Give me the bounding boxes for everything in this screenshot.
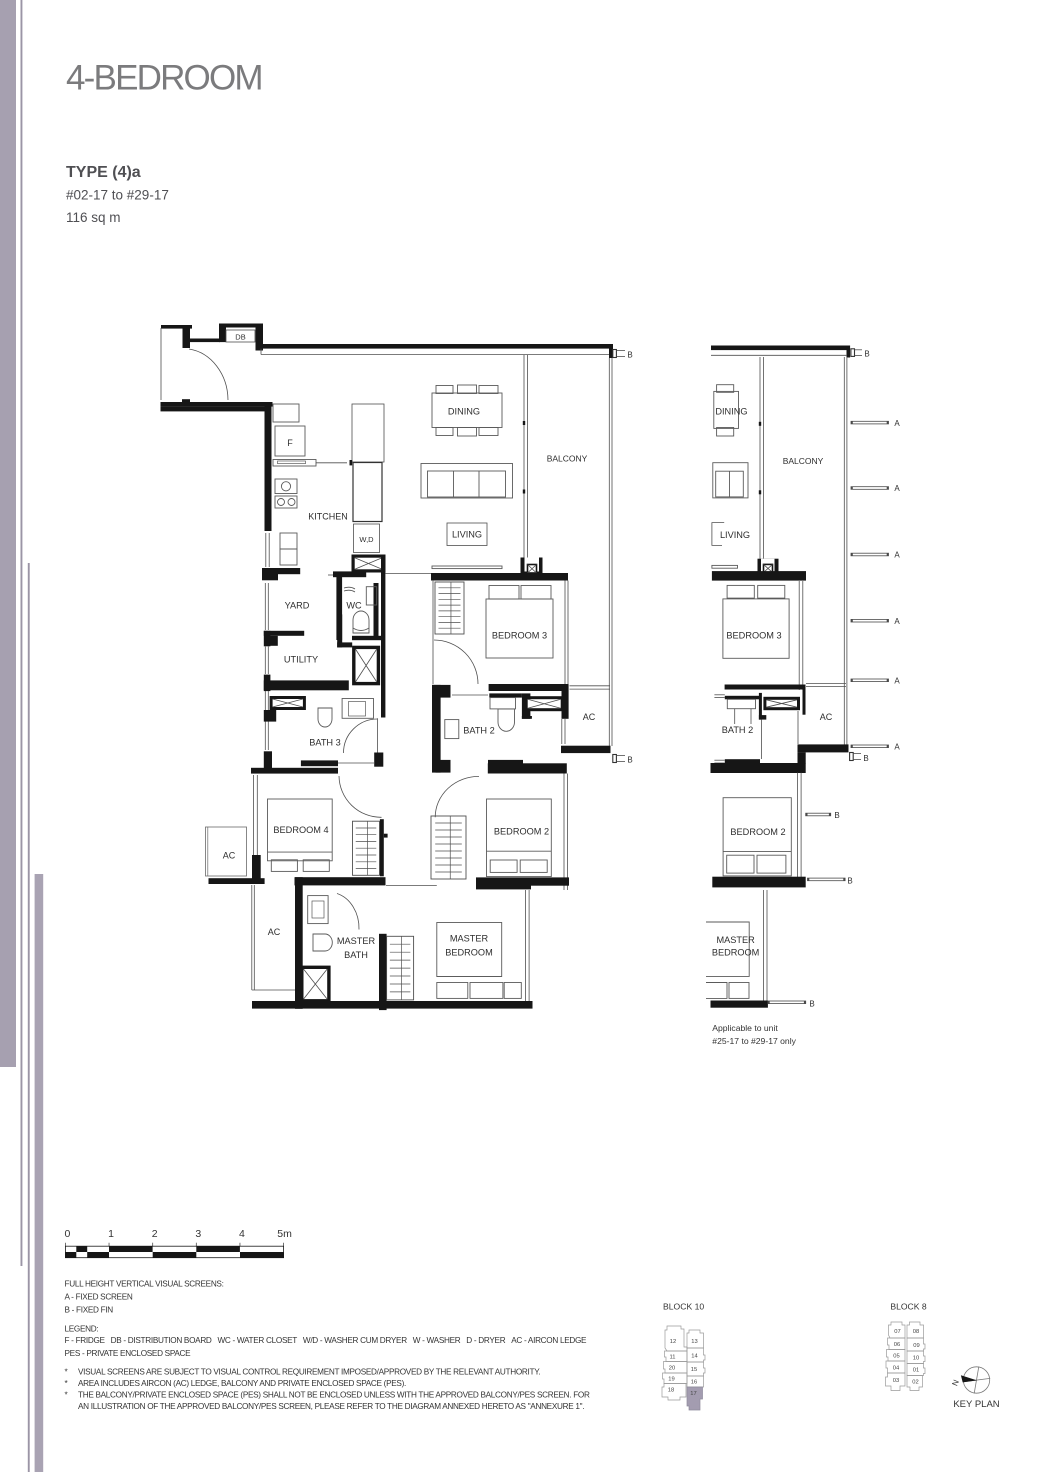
svg-text:A: A <box>894 551 900 560</box>
svg-text:15: 15 <box>691 1367 697 1373</box>
svg-text:01: 01 <box>913 1368 919 1374</box>
svg-text:B: B <box>864 350 869 359</box>
svg-text:DINING: DINING <box>448 407 480 417</box>
svg-text:#25-17 to #29-17 only: #25-17 to #29-17 only <box>712 1036 796 1046</box>
svg-text:A: A <box>894 743 900 752</box>
svg-text:13: 13 <box>691 1339 697 1345</box>
svg-text:BALCONY: BALCONY <box>783 456 824 466</box>
svg-text:A: A <box>894 617 900 626</box>
svg-text:KEY PLAN: KEY PLAN <box>953 1399 999 1410</box>
svg-text:F: F <box>287 438 293 448</box>
svg-text:BEDROOM: BEDROOM <box>445 948 492 958</box>
svg-text:A: A <box>894 677 900 686</box>
svg-text:AC: AC <box>268 927 281 937</box>
svg-text:*: * <box>65 1379 69 1388</box>
svg-text:W,D: W,D <box>359 535 374 544</box>
svg-text:04: 04 <box>893 1366 900 1372</box>
svg-text:2: 2 <box>152 1228 158 1240</box>
svg-text:AC: AC <box>820 712 833 722</box>
svg-text:BATH 2: BATH 2 <box>463 726 494 736</box>
svg-text:YARD: YARD <box>285 601 310 611</box>
svg-text:14: 14 <box>691 1354 698 1360</box>
svg-text:A: A <box>894 419 900 428</box>
svg-text:LIVING: LIVING <box>720 530 750 540</box>
svg-text:4: 4 <box>239 1228 245 1240</box>
svg-text:16: 16 <box>691 1380 697 1386</box>
svg-text:#02-17 to #29-17: #02-17 to #29-17 <box>66 188 169 203</box>
svg-text:FULL HEIGHT VERTICAL VISUAL SC: FULL HEIGHT VERTICAL VISUAL SCREENS: <box>65 1280 224 1289</box>
svg-text:MASTER: MASTER <box>716 935 755 945</box>
svg-text:PES - PRIVATE ENCLOSED SPACE: PES - PRIVATE ENCLOSED SPACE <box>65 1349 192 1358</box>
svg-text:LIVING: LIVING <box>452 530 482 540</box>
svg-text:AREA INCLUDES AIRCON (AC) LEDG: AREA INCLUDES AIRCON (AC) LEDGE, BALCONY… <box>78 1379 406 1388</box>
svg-text:BLOCK 8: BLOCK 8 <box>890 1302 927 1312</box>
svg-text:AC: AC <box>223 851 236 861</box>
svg-text:N: N <box>950 1378 961 1387</box>
svg-text:BATH 2: BATH 2 <box>722 725 753 735</box>
svg-text:*: * <box>65 1391 69 1400</box>
svg-text:A: A <box>894 484 900 493</box>
svg-text:12: 12 <box>670 1339 676 1345</box>
svg-text:THE BALCONY/PRIVATE ENCLOSED S: THE BALCONY/PRIVATE ENCLOSED SPACE (PES)… <box>78 1391 590 1400</box>
svg-text:BEDROOM 3: BEDROOM 3 <box>726 631 781 641</box>
svg-text:0: 0 <box>64 1228 70 1240</box>
svg-text:AN ILLUSTRATION OF THE APPROVE: AN ILLUSTRATION OF THE APPROVED BALCONY/… <box>78 1402 584 1411</box>
svg-text:4-BEDROOM: 4-BEDROOM <box>66 59 262 98</box>
svg-text:B: B <box>847 877 852 886</box>
svg-text:KITCHEN: KITCHEN <box>308 512 348 522</box>
svg-text:DINING: DINING <box>715 407 747 417</box>
svg-text:17: 17 <box>690 1391 696 1397</box>
svg-text:3: 3 <box>195 1228 201 1240</box>
svg-text:03: 03 <box>893 1378 899 1384</box>
svg-text:116 sq m: 116 sq m <box>66 210 121 225</box>
svg-text:B: B <box>834 811 839 820</box>
svg-text:07: 07 <box>894 1329 900 1335</box>
svg-text:B: B <box>809 1000 814 1009</box>
svg-text:BEDROOM 4: BEDROOM 4 <box>273 825 328 835</box>
svg-text:UTILITY: UTILITY <box>284 655 318 665</box>
svg-text:1: 1 <box>108 1228 114 1240</box>
svg-text:DB: DB <box>235 333 245 342</box>
svg-text:Applicable to unit: Applicable to unit <box>712 1023 778 1033</box>
svg-text:BEDROOM 3: BEDROOM 3 <box>492 631 547 641</box>
svg-text:LEGEND:: LEGEND: <box>65 1325 99 1334</box>
svg-text:5m: 5m <box>277 1228 292 1240</box>
svg-text:BATH: BATH <box>344 950 368 960</box>
svg-text:MASTER: MASTER <box>450 934 489 944</box>
svg-text:A - FIXED SCREEN: A - FIXED SCREEN <box>65 1293 133 1302</box>
svg-text:BALCONY: BALCONY <box>547 454 588 464</box>
svg-text:BEDROOM 2: BEDROOM 2 <box>730 827 785 837</box>
svg-text:10: 10 <box>913 1356 919 1362</box>
svg-text:06: 06 <box>894 1342 900 1348</box>
svg-text:05: 05 <box>893 1354 899 1360</box>
svg-text:11: 11 <box>669 1355 675 1361</box>
svg-text:VISUAL SCREENS ARE SUBJECT TO: VISUAL SCREENS ARE SUBJECT TO VISUAL CON… <box>78 1368 540 1377</box>
svg-text:TYPE (4)a: TYPE (4)a <box>66 164 141 181</box>
svg-text:*: * <box>65 1368 69 1377</box>
svg-text:BLOCK 10: BLOCK 10 <box>663 1302 704 1312</box>
svg-text:B - FIXED FIN: B - FIXED FIN <box>65 1306 114 1315</box>
svg-text:B: B <box>863 754 868 763</box>
svg-text:MASTER: MASTER <box>337 936 376 946</box>
svg-text:WC: WC <box>346 601 362 611</box>
svg-text:B: B <box>627 351 632 360</box>
svg-text:B: B <box>627 756 632 765</box>
svg-text:F - FRIDGE DB - DISTRIBUTION: F - FRIDGE DB - DISTRIBUTION BOARD WC - … <box>65 1336 588 1345</box>
svg-text:09: 09 <box>913 1343 919 1349</box>
svg-text:20: 20 <box>669 1366 675 1372</box>
svg-text:18: 18 <box>668 1388 674 1394</box>
svg-text:BATH 3: BATH 3 <box>309 738 340 748</box>
svg-text:AC: AC <box>583 712 596 722</box>
svg-text:19: 19 <box>668 1377 674 1383</box>
svg-text:02: 02 <box>912 1380 918 1386</box>
svg-text:08: 08 <box>913 1329 919 1335</box>
svg-text:BEDROOM 2: BEDROOM 2 <box>494 827 549 837</box>
svg-text:BEDROOM: BEDROOM <box>712 948 759 958</box>
